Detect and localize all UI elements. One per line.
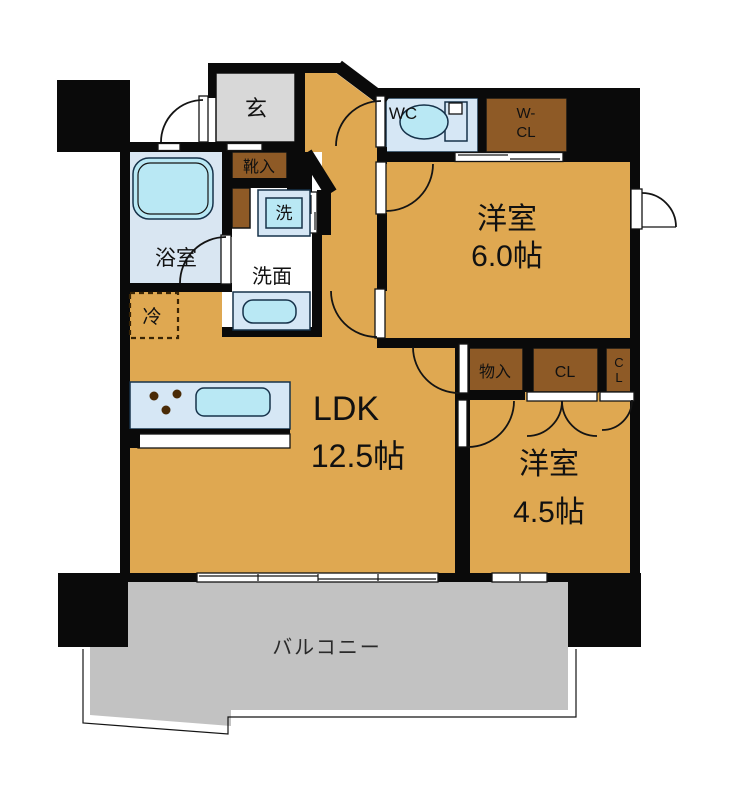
bathroom-door-leaf [221, 235, 231, 284]
wall-bottomleft-block [58, 573, 128, 647]
wc-label: WC [389, 104, 417, 123]
bedroom1-size-label: 6.0帖 [471, 240, 543, 273]
wall-wc-top [377, 88, 640, 98]
wall-genkan-left-stub [208, 63, 216, 98]
kitchen-front-band [128, 429, 290, 434]
wcl-label-line2: CL [516, 124, 535, 141]
wall-bottom-a [128, 573, 197, 582]
balcony-label: バルコニー [272, 637, 382, 659]
wall-entry-band [122, 142, 305, 152]
wall-bath-bottom [122, 283, 232, 292]
bedroom2-size-label: 4.5帖 [513, 496, 585, 529]
wall-genkan-right [295, 63, 305, 155]
stove-burner-3 [162, 406, 171, 415]
stove-burner-2 [173, 390, 182, 399]
wall-closet-div2 [598, 348, 606, 392]
bath-window [158, 144, 180, 151]
wall-hall-left-mid [317, 190, 331, 235]
entrance-door-arc [161, 100, 203, 142]
wall-washroom-right [312, 233, 322, 337]
bedroom1-name-label: 洋室 [477, 203, 537, 236]
closet2-door-track [600, 392, 634, 401]
wcl-label-line1: W- [517, 105, 536, 122]
bedroom2-door-leaf-lower [458, 400, 467, 447]
wc-door-leaf [376, 96, 385, 147]
closet2-label-line1: C [614, 355, 623, 370]
wall-topleft-block [57, 80, 130, 152]
service-door-arc [642, 193, 676, 227]
storage-label: 物入 [479, 363, 511, 381]
kitchen-front-stub [128, 429, 140, 448]
washer-label: 洗 [276, 204, 293, 223]
closet-door-track [527, 392, 597, 401]
wall-closet-div1 [523, 348, 533, 392]
bedroom2-name-label: 洋室 [519, 448, 579, 481]
ldk-size-label: 12.5帖 [311, 438, 405, 474]
wall-hall-room6-b [377, 213, 387, 291]
wall-bath-divider [222, 152, 232, 237]
bedroom2-door-leaf-upper [459, 344, 468, 393]
washroom-label: 洗面 [252, 265, 292, 288]
wall-left [120, 143, 130, 578]
wall-genkan-top [208, 63, 342, 73]
ldk-name-label: LDK [313, 390, 379, 428]
closet2-label-line2: L [615, 370, 622, 385]
stove-burner-1 [150, 392, 159, 401]
wall-under-storage [465, 390, 525, 400]
wall-bottom-b [438, 573, 492, 582]
kitchen-front-panel [138, 434, 290, 448]
shoe-cabinet-label: 靴入 [243, 158, 275, 176]
floor-plan-canvas: 玄 靴入 浴室 洗 洗面 冷 WC W- CL 洋室 6.0帖 物入 CL C … [0, 0, 736, 800]
pipe-space-box [232, 188, 250, 228]
wall-topright-chunk [567, 98, 640, 162]
vanity-sink [243, 300, 296, 323]
floor-plan-drawing: 玄 靴入 浴室 洗 洗面 冷 WC W- CL 洋室 6.0帖 物入 CL C … [0, 0, 736, 800]
toilet-tank-lid [449, 103, 462, 114]
closet-label: CL [555, 364, 576, 381]
wall-under-shoes [232, 178, 290, 188]
bathroom-label: 浴室 [155, 247, 197, 270]
wall-room6-bottom [377, 338, 640, 348]
bathtub [133, 158, 213, 219]
kitchen-sink [196, 388, 270, 416]
entrance-step [227, 144, 262, 151]
service-door-leaf [631, 189, 642, 229]
ldk-door-leaf [375, 289, 385, 338]
wall-right [630, 88, 640, 582]
wall-wc-wcl-divider [478, 98, 486, 152]
refrigerator-label: 冷 [142, 306, 161, 328]
wcl-sliding-door [455, 153, 563, 162]
entrance-door-leaf [199, 96, 208, 142]
wall-bottomright-block [568, 573, 641, 647]
bedroom1-door-leaf [376, 162, 386, 214]
entrance-label: 玄 [245, 96, 267, 121]
